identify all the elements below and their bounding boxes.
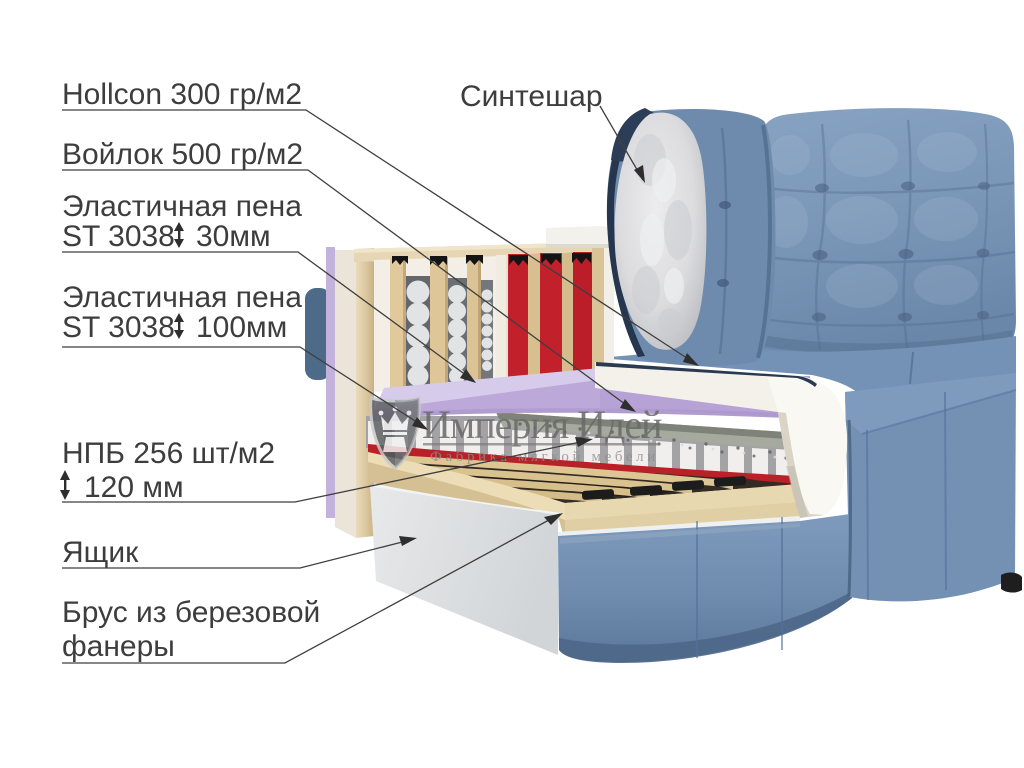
svg-text:Войлок 500 гр/м2: Войлок 500 гр/м2 <box>62 138 303 171</box>
svg-text:ST 3038: ST 3038 <box>62 220 175 253</box>
svg-text:30мм: 30мм <box>196 220 271 253</box>
svg-text:Эластичная пена: Эластичная пена <box>62 190 302 223</box>
svg-text:НПБ 256 шт/м2: НПБ 256 шт/м2 <box>62 437 275 470</box>
svg-text:Эластичная пена: Эластичная пена <box>62 281 302 314</box>
svg-text:Hollcon 300 гр/м2: Hollcon 300 гр/м2 <box>62 78 302 111</box>
svg-text:Фабрика мягкой мебели: Фабрика мягкой мебели <box>430 449 659 465</box>
svg-text:Синтешар: Синтешар <box>460 80 603 113</box>
svg-text:100мм: 100мм <box>196 311 287 344</box>
svg-text:фанеры: фанеры <box>62 630 175 663</box>
svg-text:120 мм: 120 мм <box>84 471 184 504</box>
svg-text:Ящик: Ящик <box>62 536 139 569</box>
svg-text:ST 3038: ST 3038 <box>62 311 175 344</box>
svg-text:Брус из березовой: Брус из березовой <box>62 596 320 629</box>
